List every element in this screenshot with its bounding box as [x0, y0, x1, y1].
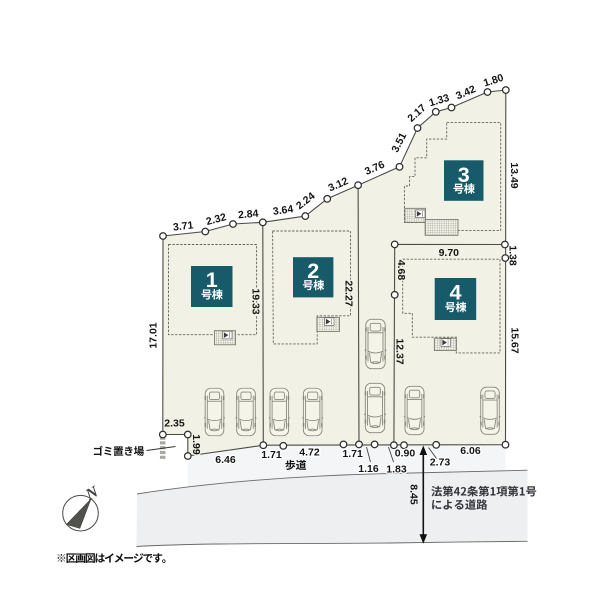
- svg-text:2.73: 2.73: [430, 457, 451, 469]
- svg-text:3: 3: [458, 163, 470, 187]
- svg-text:15.67: 15.67: [509, 327, 521, 353]
- svg-text:1.71: 1.71: [342, 448, 363, 460]
- svg-text:13.49: 13.49: [508, 162, 520, 188]
- svg-text:22.27: 22.27: [343, 280, 355, 306]
- svg-text:1: 1: [206, 268, 218, 292]
- svg-text:3.71: 3.71: [172, 219, 194, 233]
- svg-text:2.35: 2.35: [164, 418, 185, 430]
- svg-text:0.90: 0.90: [395, 448, 416, 460]
- svg-text:17.01: 17.01: [148, 322, 160, 348]
- svg-text:1.16: 1.16: [358, 463, 379, 475]
- svg-text:2: 2: [307, 259, 319, 283]
- svg-text:4: 4: [450, 281, 462, 305]
- svg-text:1.99: 1.99: [190, 434, 202, 455]
- svg-text:4.72: 4.72: [299, 447, 320, 459]
- svg-text:19.33: 19.33: [249, 288, 261, 314]
- svg-text:1.38: 1.38: [506, 245, 518, 266]
- svg-text:1.83: 1.83: [386, 464, 407, 476]
- svg-text:6.46: 6.46: [215, 454, 236, 466]
- svg-text:8.45: 8.45: [407, 484, 419, 505]
- svg-text:12.37: 12.37: [394, 338, 406, 364]
- svg-text:1.71: 1.71: [261, 449, 282, 461]
- svg-text:2.84: 2.84: [238, 208, 260, 222]
- svg-text:9.70: 9.70: [439, 247, 460, 259]
- svg-text:4.68: 4.68: [395, 260, 407, 281]
- svg-text:6.06: 6.06: [460, 445, 481, 457]
